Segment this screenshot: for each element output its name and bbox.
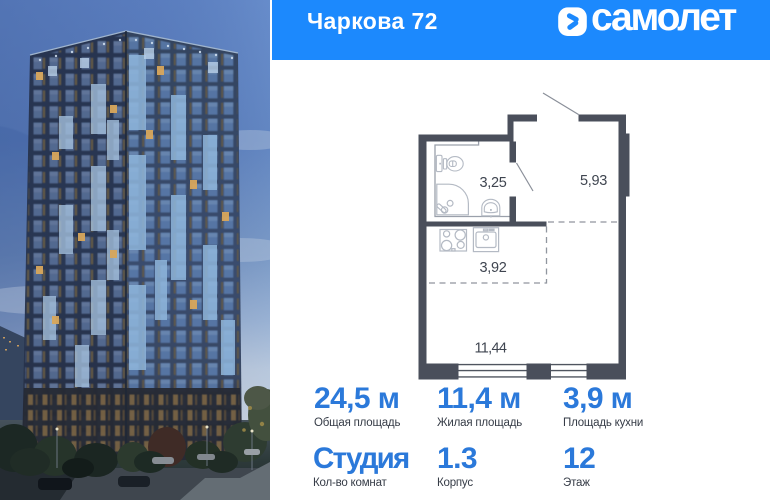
svg-text:11,44: 11,44 xyxy=(475,341,507,357)
svg-text:3,92: 3,92 xyxy=(480,260,507,276)
svg-text:5,93: 5,93 xyxy=(580,173,607,189)
svg-text:3,25: 3,25 xyxy=(480,175,507,191)
